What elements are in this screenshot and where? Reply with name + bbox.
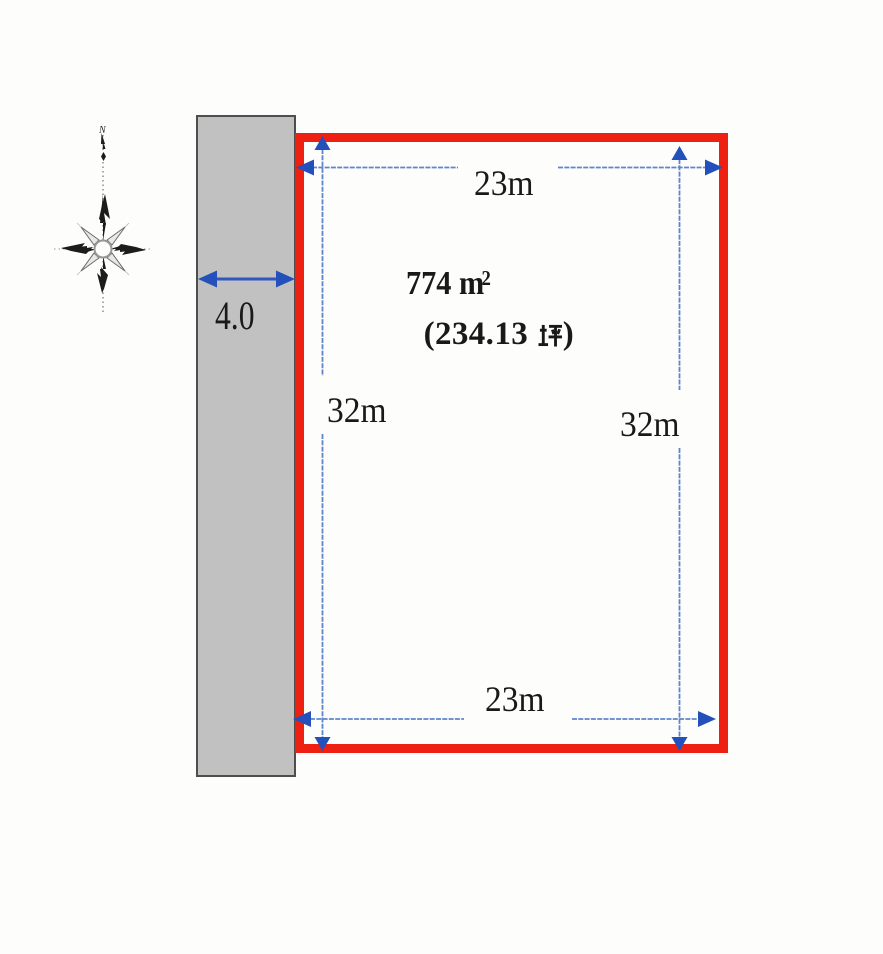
svg-text:N: N <box>98 125 107 136</box>
